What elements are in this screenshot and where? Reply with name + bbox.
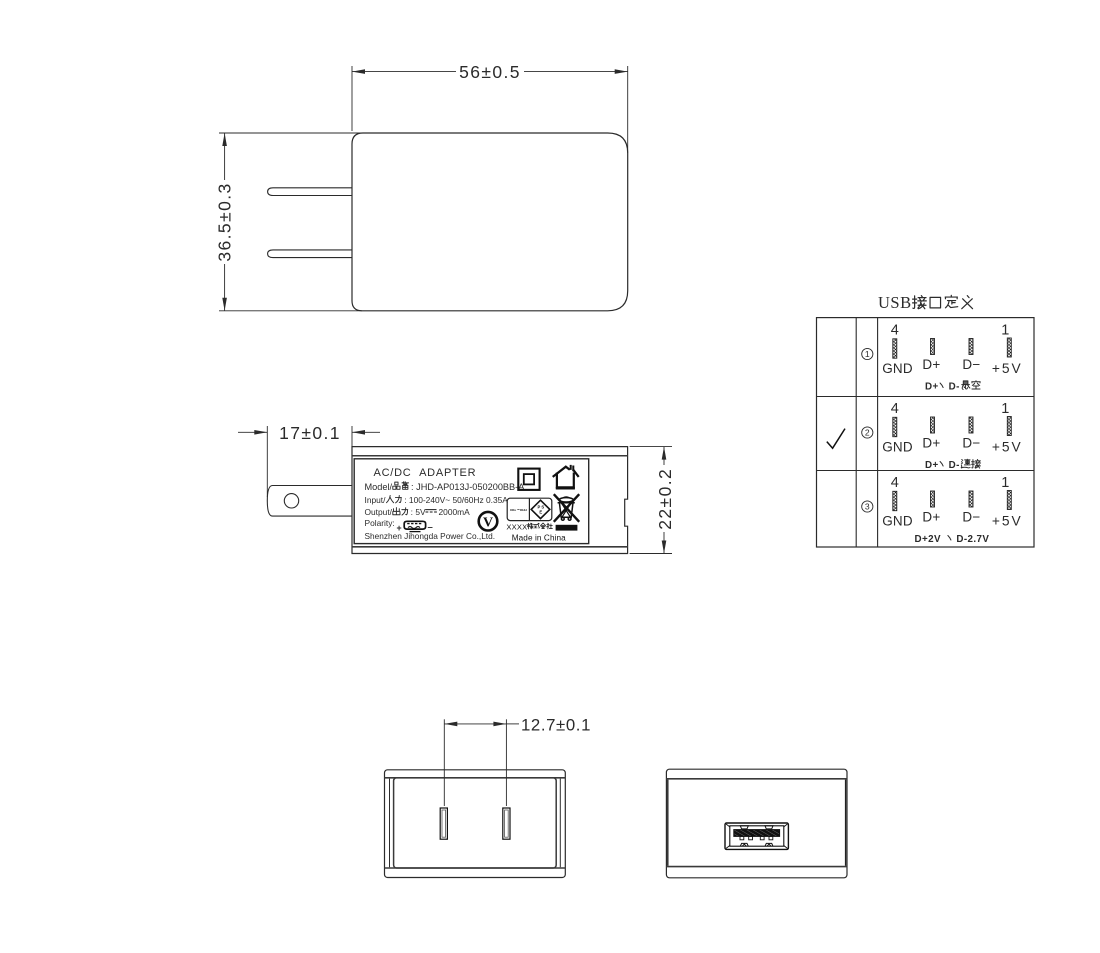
svg-text:D-2.7V: D-2.7V bbox=[956, 534, 989, 545]
svg-text:Made in China: Made in China bbox=[512, 534, 566, 543]
svg-text:Shenzhen Jihongda Power Co.,Lt: Shenzhen Jihongda Power Co.,Ltd. bbox=[365, 531, 496, 541]
svg-text:2000mA: 2000mA bbox=[439, 507, 471, 517]
svg-text:AC/DC ADAPTER: AC/DC ADAPTER bbox=[374, 467, 477, 479]
svg-text:GND: GND bbox=[882, 514, 913, 529]
svg-text:D−: D− bbox=[962, 357, 980, 372]
svg-text:1: 1 bbox=[865, 349, 870, 359]
svg-text:36.5±0.3: 36.5±0.3 bbox=[215, 182, 235, 261]
svg-text:Polarity:: Polarity: bbox=[365, 518, 395, 528]
svg-text:4: 4 bbox=[891, 475, 899, 491]
svg-text:GND: GND bbox=[882, 440, 913, 455]
svg-text:12.7±0.1: 12.7±0.1 bbox=[521, 716, 591, 735]
svg-text:D−: D− bbox=[962, 436, 980, 451]
svg-text:D+: D+ bbox=[922, 436, 940, 451]
svg-text:1: 1 bbox=[1001, 475, 1009, 491]
svg-text:D-: D- bbox=[949, 382, 960, 393]
svg-text:1: 1 bbox=[1001, 401, 1009, 417]
svg-text:+5V: +5V bbox=[992, 514, 1023, 529]
svg-text:USB: USB bbox=[878, 293, 912, 312]
svg-text:D+: D+ bbox=[922, 357, 940, 372]
svg-text:GND: GND bbox=[882, 361, 913, 376]
svg-text:ΧΟυ ™ΟΗΗ: ΧΟυ ™ΟΗΗ bbox=[510, 508, 528, 512]
svg-text:4: 4 bbox=[891, 401, 899, 417]
svg-text:D-: D- bbox=[949, 460, 960, 471]
svg-text:: 100-240V~ 50/60Hz 0.35A: : 100-240V~ 50/60Hz 0.35A bbox=[404, 495, 508, 505]
svg-text:D+: D+ bbox=[925, 382, 939, 393]
svg-text:1: 1 bbox=[1001, 323, 1009, 339]
svg-text:D−: D− bbox=[962, 510, 980, 525]
svg-text:22±0.2: 22±0.2 bbox=[655, 468, 675, 530]
svg-text:: JHD-AP013J-050200BB-A: : JHD-AP013J-050200BB-A bbox=[411, 482, 525, 492]
svg-text:: 5V: : 5V bbox=[411, 507, 426, 517]
svg-text:3: 3 bbox=[865, 502, 870, 512]
svg-text:Input/: Input/ bbox=[365, 495, 387, 505]
svg-text:2: 2 bbox=[865, 428, 870, 438]
svg-text:V: V bbox=[483, 516, 493, 531]
svg-text:17±0.1: 17±0.1 bbox=[279, 423, 341, 443]
svg-text:56±0.5: 56±0.5 bbox=[459, 62, 521, 82]
svg-text:Output/: Output/ bbox=[365, 507, 393, 517]
svg-text:D+2V: D+2V bbox=[915, 534, 941, 545]
svg-text:+5V: +5V bbox=[992, 361, 1023, 376]
svg-text:4: 4 bbox=[891, 323, 899, 339]
svg-text:D+: D+ bbox=[925, 460, 939, 471]
svg-text:+5V: +5V bbox=[992, 440, 1023, 455]
svg-text:Model/: Model/ bbox=[365, 482, 393, 492]
svg-text:E: E bbox=[539, 509, 542, 514]
svg-text:XXXX: XXXX bbox=[506, 523, 527, 532]
svg-text:D+: D+ bbox=[922, 510, 940, 525]
